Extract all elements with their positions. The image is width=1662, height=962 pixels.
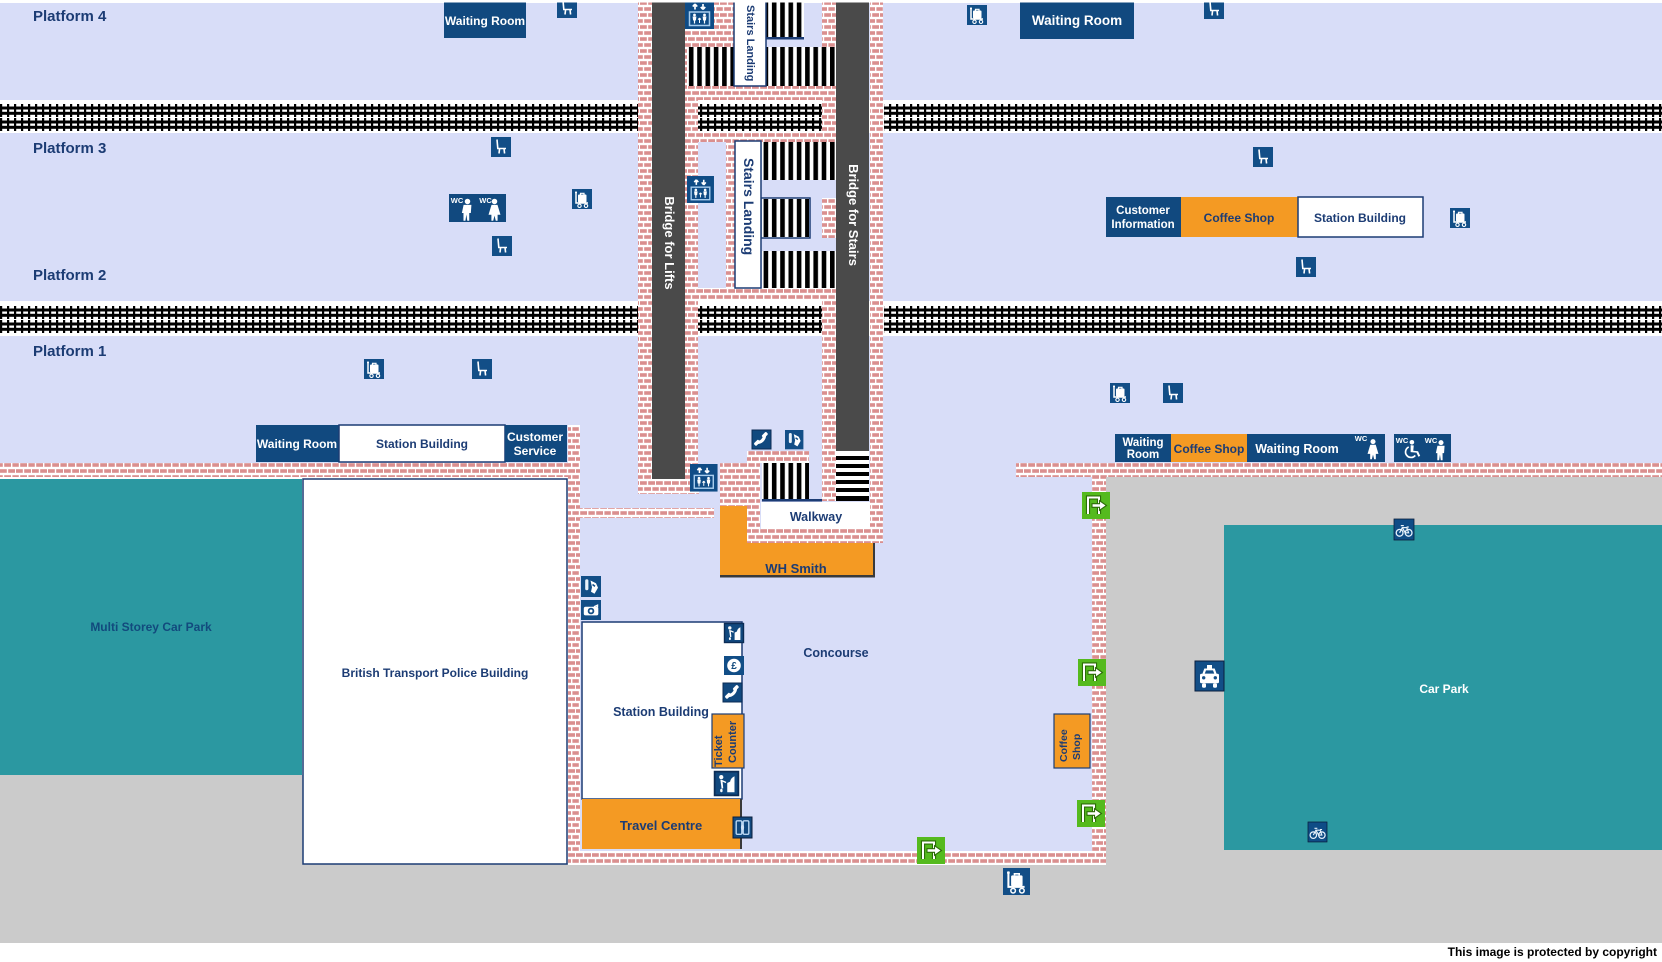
svg-text:Waiting Room: Waiting Room — [1032, 13, 1122, 28]
svg-text:Platform 1: Platform 1 — [33, 343, 106, 360]
svg-text:Station Building: Station Building — [1314, 211, 1406, 225]
svg-text:WC: WC — [1425, 436, 1438, 445]
svg-text:British Transport Police Build: British Transport Police Building — [342, 666, 529, 680]
svg-text:Bridge for Lifts: Bridge for Lifts — [662, 196, 677, 289]
svg-text:Customer: Customer — [507, 430, 563, 444]
svg-text:This image is protected by cop: This image is protected by copyright — [1448, 945, 1657, 959]
svg-text:Waiting Room: Waiting Room — [445, 14, 525, 28]
svg-text:Service: Service — [514, 444, 557, 458]
svg-text:WC: WC — [479, 196, 492, 205]
svg-text:WC: WC — [1355, 434, 1368, 443]
svg-text:Counter: Counter — [727, 720, 739, 763]
svg-text:Coffee Shop: Coffee Shop — [1204, 211, 1275, 225]
svg-text:Platform 3: Platform 3 — [33, 140, 106, 157]
svg-text:Concourse: Concourse — [803, 646, 868, 660]
svg-text:Car Park: Car Park — [1419, 682, 1469, 696]
svg-text:WC: WC — [451, 196, 464, 205]
svg-text:Waiting: Waiting — [1122, 437, 1163, 449]
svg-text:WC: WC — [1396, 436, 1409, 445]
svg-text:Customer: Customer — [1116, 205, 1170, 217]
svg-text:WH Smith: WH Smith — [765, 561, 826, 576]
svg-text:Platform 2: Platform 2 — [33, 267, 106, 284]
svg-text:Waiting Room: Waiting Room — [257, 437, 337, 451]
svg-text:Bridge for Stairs: Bridge for Stairs — [846, 164, 861, 266]
svg-text:Ticket: Ticket — [713, 735, 725, 767]
svg-text:Coffee Shop: Coffee Shop — [1174, 442, 1245, 456]
svg-text:Stairs Landing: Stairs Landing — [741, 158, 757, 255]
svg-text:Stairs Landing: Stairs Landing — [744, 5, 756, 81]
svg-text:Shop: Shop — [1071, 734, 1083, 760]
svg-text:Coffee: Coffee — [1058, 729, 1070, 762]
svg-text:Travel Centre: Travel Centre — [620, 818, 702, 833]
svg-text:Station Building: Station Building — [613, 705, 709, 719]
svg-text:Multi Storey Car Park: Multi Storey Car Park — [90, 620, 212, 634]
svg-text:Walkway: Walkway — [790, 510, 842, 524]
svg-text:Information: Information — [1111, 219, 1174, 231]
svg-text:Platform 4: Platform 4 — [33, 8, 107, 25]
svg-text:Waiting Room: Waiting Room — [1255, 442, 1339, 456]
svg-text:Station Building: Station Building — [376, 437, 468, 451]
svg-text:Room: Room — [1127, 449, 1160, 461]
